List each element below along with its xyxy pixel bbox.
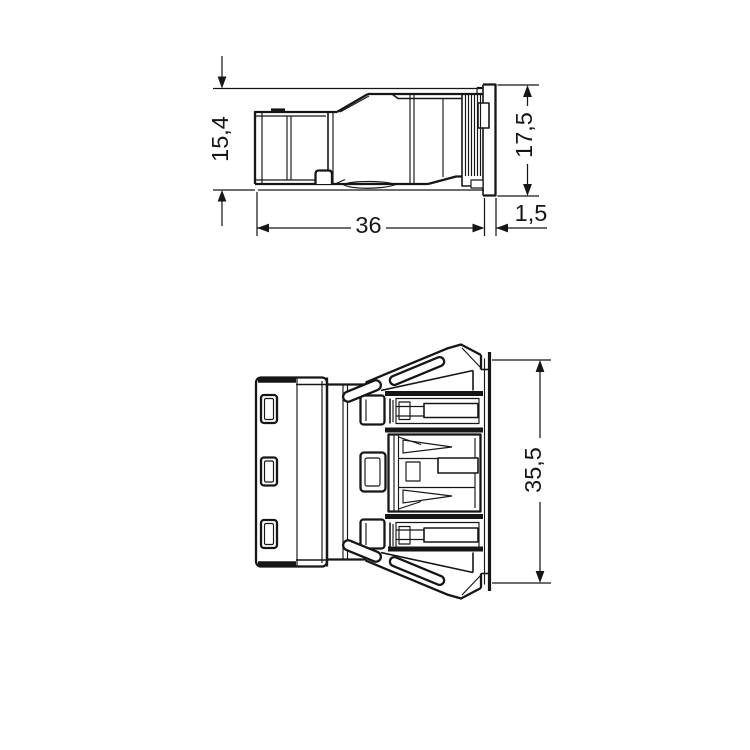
side-view-bottom-notch [316, 171, 333, 185]
contact-window-3 [261, 520, 277, 548]
dimension-36: 36 [257, 192, 485, 238]
top-view-mounting-frame [485, 352, 490, 591]
dimension-label-36: 36 [355, 212, 381, 238]
side-view: 15,4 36 1,5 17,5 [207, 56, 547, 238]
dimension-35-5: 35,5 [492, 360, 551, 583]
dimension-15-4: 15,4 [207, 56, 483, 226]
dimension-label-1-5: 1,5 [515, 200, 548, 226]
connector-dimension-drawing: 15,4 36 1,5 17,5 [0, 0, 750, 750]
dimension-label-17-5: 17,5 [511, 112, 537, 158]
side-view-housing-outline [255, 94, 483, 186]
dimension-17-5: 17,5 [498, 85, 540, 196]
side-view-inner-lines [256, 94, 462, 184]
top-view-contact-block [385, 394, 483, 550]
contact-window-1 [261, 395, 277, 423]
contact-window-2 [261, 458, 277, 486]
dimension-label-35-5: 35,5 [520, 447, 546, 493]
top-view-plug-section [256, 378, 327, 567]
dimension-1-5: 1,5 [496, 198, 547, 236]
top-view: 35,5 [256, 345, 551, 599]
wing-slot-top-inner [342, 379, 383, 404]
dimension-label-15-4: 15,4 [207, 116, 233, 162]
technical-drawing-page: 15,4 36 1,5 17,5 [0, 0, 750, 750]
top-view-neck-section [327, 385, 386, 560]
